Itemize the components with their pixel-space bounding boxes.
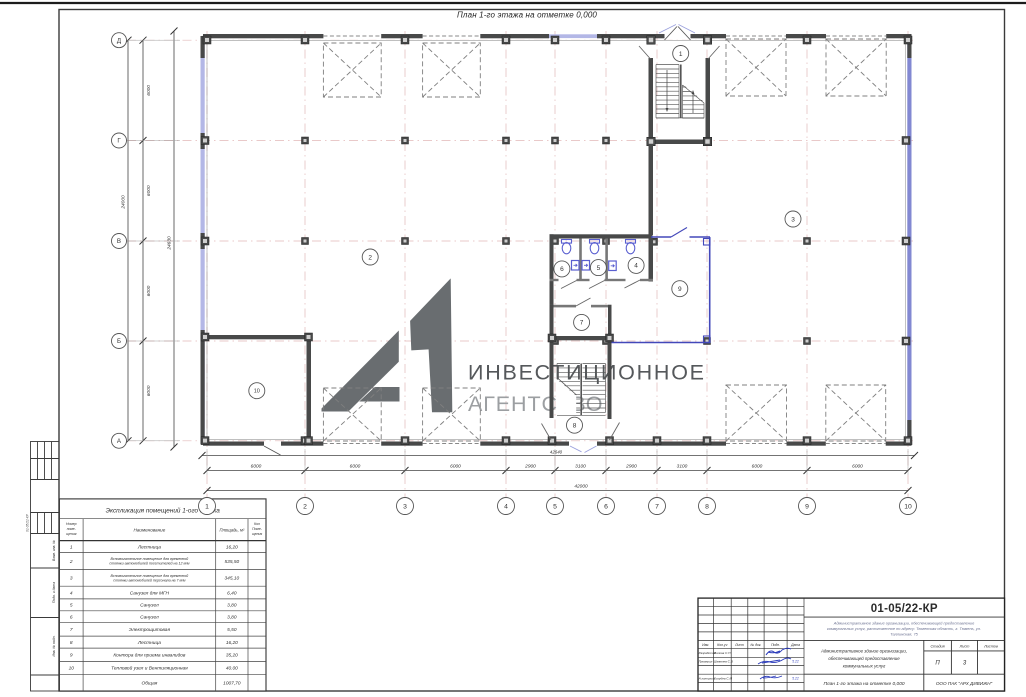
svg-text:6000: 6000 (146, 185, 152, 196)
svg-text:Лестница: Лестница (137, 640, 161, 646)
svg-text:6000: 6000 (450, 464, 461, 470)
svg-text:8: 8 (70, 640, 73, 646)
svg-text:Таллинская, 75: Таллинская, 75 (890, 632, 918, 637)
svg-text:7: 7 (70, 627, 73, 633)
svg-text:Электрощитовая: Электрощитовая (129, 627, 171, 633)
svg-text:ООО ПАК "АРХ ДИВИЖН": ООО ПАК "АРХ ДИВИЖН" (936, 681, 993, 686)
svg-text:3100: 3100 (677, 464, 688, 470)
svg-text:Общая: Общая (142, 681, 158, 687)
svg-text:1: 1 (679, 51, 683, 58)
svg-text:2900: 2900 (524, 464, 536, 470)
svg-text:5: 5 (597, 265, 601, 272)
svg-text:535,50: 535,50 (225, 559, 240, 565)
svg-text:Инв. № подл.: Инв. № подл. (52, 635, 56, 656)
svg-text:3100: 3100 (575, 464, 586, 470)
svg-text:Лестница: Лестница (137, 544, 161, 550)
svg-text:9: 9 (805, 503, 809, 510)
svg-text:5,50: 5,50 (227, 627, 237, 633)
svg-text:Номер: Номер (66, 522, 77, 526)
svg-text:коммунальных услуг, расположен: коммунальных услуг, расположенное по адр… (827, 626, 981, 631)
svg-text:Санузел для МГН: Санузел для МГН (130, 590, 170, 596)
svg-text:поме-: поме- (67, 527, 77, 531)
svg-text:Взам. инв. №: Взам. инв. № (52, 540, 56, 561)
svg-text:42640: 42640 (550, 450, 563, 455)
svg-text:6000: 6000 (146, 385, 152, 396)
svg-text:6000: 6000 (350, 464, 361, 470)
svg-text:Наименование: Наименование (134, 528, 166, 533)
svg-text:01-05/22-КР: 01-05/22-КР (26, 513, 30, 532)
svg-text:№ док.: № док. (750, 643, 761, 647)
svg-text:3: 3 (70, 576, 73, 582)
svg-text:6: 6 (604, 503, 608, 510)
svg-text:Административное здание органи: Административное здание организации, (820, 649, 907, 654)
svg-text:1007,70: 1007,70 (223, 681, 241, 687)
svg-text:обеспечивающей предоставление: обеспечивающей предоставление (828, 656, 900, 661)
svg-text:5.22: 5.22 (792, 677, 799, 681)
svg-text:В: В (117, 238, 121, 245)
svg-text:8: 8 (705, 503, 709, 510)
svg-text:2: 2 (69, 559, 73, 565)
svg-text:Поме-: Поме- (252, 527, 263, 531)
svg-text:Подп.: Подп. (771, 643, 780, 647)
svg-text:10: 10 (254, 389, 260, 395)
svg-text:Тепловой узел и Вентиляционная: Тепловой узел и Вентиляционная (111, 665, 188, 672)
svg-text:6,40: 6,40 (227, 590, 237, 596)
svg-text:4: 4 (504, 503, 508, 510)
svg-text:Волков С.Н: Волков С.Н (714, 651, 731, 655)
svg-text:1: 1 (205, 503, 209, 510)
svg-text:План 1-го этажа на отметке 0,0: План 1-го этажа на отметке 0,000 (457, 11, 597, 20)
svg-text:Административное здание органи: Административное здание организации, обе… (833, 621, 975, 626)
svg-text:16,20: 16,20 (226, 640, 238, 646)
svg-text:6: 6 (560, 266, 564, 273)
svg-text:16,20: 16,20 (226, 544, 238, 550)
svg-text:9: 9 (678, 286, 682, 293)
svg-text:Лист: Лист (959, 645, 970, 649)
svg-text:Площадь, м²: Площадь, м² (219, 528, 244, 533)
svg-text:Проверил: Проверил (699, 660, 713, 664)
svg-text:Б: Б (117, 338, 121, 345)
svg-text:П: П (935, 661, 940, 667)
svg-text:Кол.уч: Кол.уч (717, 643, 727, 647)
svg-text:Вспомогательное помещение для: Вспомогательное помещение для временной (111, 574, 189, 578)
svg-text:7: 7 (655, 503, 659, 510)
svg-text:2: 2 (303, 503, 307, 510)
svg-text:Листов: Листов (983, 645, 998, 649)
svg-text:План 1-го этажа на отметке 0,0: План 1-го этажа на отметке 0,000 (823, 681, 904, 687)
svg-text:Кол: Кол (254, 522, 260, 526)
svg-text:3: 3 (403, 503, 407, 510)
svg-text:24000: 24000 (120, 195, 126, 210)
svg-text:01-05/22-КР: 01-05/22-КР (871, 603, 938, 615)
svg-text:стоянки автомобилей посетителе: стоянки автомобилей посетителей на 12 м/… (109, 562, 190, 566)
svg-text:35,20: 35,20 (226, 653, 238, 659)
svg-text:коммунальных услуг: коммунальных услуг (843, 664, 886, 669)
svg-text:Шевелев С.В: Шевелев С.В (714, 660, 733, 664)
svg-text:Санузел: Санузел (140, 615, 159, 621)
svg-text:6000: 6000 (752, 464, 763, 470)
svg-text:5: 5 (70, 603, 73, 609)
svg-text:4: 4 (634, 263, 638, 270)
svg-text:6: 6 (70, 615, 73, 621)
svg-text:3,80: 3,80 (227, 615, 237, 621)
svg-text:щения: щения (66, 532, 77, 536)
svg-text:Изм.: Изм. (702, 643, 709, 647)
svg-text:42000: 42000 (574, 484, 588, 490)
svg-text:10: 10 (904, 503, 912, 510)
svg-text:10: 10 (69, 666, 75, 672)
svg-text:2900: 2900 (625, 464, 637, 470)
svg-text:щения: щения (252, 532, 263, 536)
svg-text:4: 4 (70, 590, 73, 596)
svg-text:Санузел: Санузел (140, 603, 159, 609)
svg-text:8: 8 (573, 422, 577, 429)
svg-text:Лист: Лист (734, 643, 744, 647)
svg-text:9: 9 (70, 653, 73, 659)
svg-text:Стадия: Стадия (930, 645, 944, 649)
svg-text:Вспомогательное помещение для: Вспомогательное помещение для временной (111, 557, 189, 561)
svg-text:1: 1 (70, 544, 73, 550)
svg-text:2: 2 (368, 254, 372, 261)
svg-text:3,80: 3,80 (227, 603, 237, 609)
svg-text:Дата: Дата (790, 643, 800, 647)
svg-text:5.22: 5.22 (792, 660, 799, 664)
svg-text:6000: 6000 (146, 285, 152, 296)
svg-text:5: 5 (553, 503, 557, 510)
svg-text:40.00: 40.00 (226, 666, 238, 672)
svg-text:7: 7 (580, 320, 584, 327)
svg-text:24630: 24630 (166, 236, 172, 251)
svg-text:6000: 6000 (852, 464, 863, 470)
svg-text:345,10: 345,10 (225, 576, 240, 582)
svg-text:6000: 6000 (146, 85, 152, 96)
svg-text:Голубев С.М: Голубев С.М (714, 677, 733, 681)
svg-text:6000: 6000 (251, 464, 262, 470)
svg-text:3: 3 (791, 216, 795, 223)
svg-text:Контора для приема инвалидов: Контора для приема инвалидов (113, 653, 186, 659)
svg-text:Подп. и дата: Подп. и дата (52, 582, 56, 603)
svg-text:стоянки автомобилей персонала: стоянки автомобилей персонала на 7 м/м (113, 579, 186, 583)
